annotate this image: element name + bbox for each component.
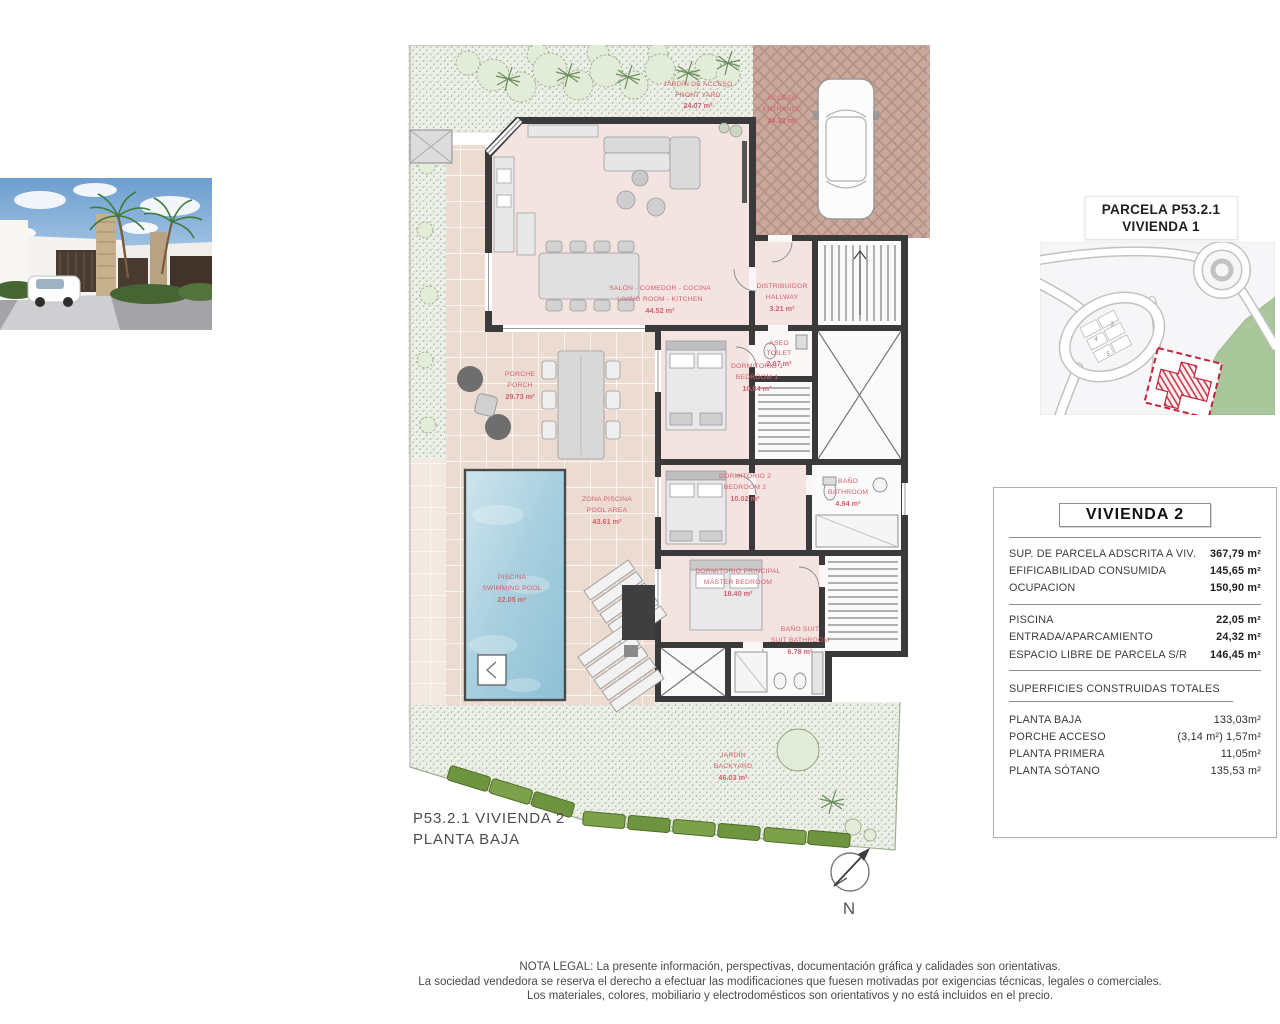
svg-text:BAÑO SUIT: BAÑO SUIT	[781, 624, 819, 633]
row-label: PORCHE ACCESO	[1009, 731, 1106, 743]
panel-row: PISCINA 22,05 m²	[1008, 612, 1262, 629]
bed-bedroom2	[666, 471, 726, 544]
caption-line1: P53.2.1 VIVIENDA 2	[413, 808, 565, 829]
svg-text:18.40 m²: 18.40 m²	[723, 589, 753, 598]
svg-text:3.21 m²: 3.21 m²	[769, 304, 795, 313]
legal-line1: NOTA LEGAL: La presente información, per…	[295, 960, 1280, 975]
row-label: SUP. DE PARCELA ADSCRITA A VIV.	[1009, 548, 1196, 560]
svg-text:DORMITORIO 2: DORMITORIO 2	[719, 473, 771, 480]
row-value: 11,05m²	[1221, 748, 1261, 760]
panel-row: EFIFICABILIDAD CONSUMIDA 145,65 m²	[1008, 562, 1262, 579]
panel-title: VIVIENDA 2	[1059, 503, 1211, 527]
svg-text:BACKYARD: BACKYARD	[714, 763, 753, 770]
svg-text:PORCH: PORCH	[507, 382, 533, 389]
row-label: ESPACIO LIBRE DE PARCELA S/R	[1009, 649, 1187, 661]
svg-text:29.73 m²: 29.73 m²	[505, 392, 535, 401]
caption-line2: PLANTA BAJA	[413, 829, 565, 850]
svg-text:44.52 m²: 44.52 m²	[645, 306, 675, 315]
svg-text:SALÓN - COMEDOR - COCINA: SALÓN - COMEDOR - COCINA	[609, 283, 711, 292]
svg-text:TOILET: TOILET	[767, 350, 792, 357]
utility-box	[410, 130, 452, 163]
divider	[1009, 537, 1261, 538]
plan-caption: P53.2.1 VIVIENDA 2 PLANTA BAJA	[413, 808, 565, 850]
map-title-line1: PARCELA P53.2.1	[1102, 201, 1221, 218]
svg-text:BATHROOM: BATHROOM	[828, 489, 869, 496]
svg-text:DISTRIBUIDOR: DISTRIBUIDOR	[756, 283, 807, 290]
svg-text:LIVING ROOM - KITCHEN: LIVING ROOM - KITCHEN	[617, 296, 702, 303]
row-label: PISCINA	[1009, 614, 1054, 626]
side-walkway	[408, 458, 446, 705]
svg-text:PORCHE: PORCHE	[505, 371, 536, 378]
svg-text:BEDROOM 1: BEDROOM 1	[736, 374, 779, 381]
svg-text:JARDÍN DE ACCESO: JARDÍN DE ACCESO	[663, 79, 732, 88]
svg-text:22.05 m²: 22.05 m²	[497, 595, 527, 604]
svg-text:6.78 m²: 6.78 m²	[787, 647, 813, 656]
panel-row: ENTRADA/APARCAMIENTO 24,32 m²	[1008, 629, 1262, 646]
row-value: 146,45 m²	[1210, 649, 1261, 661]
svg-text:ASEO: ASEO	[769, 340, 789, 347]
stairs-mid	[755, 382, 812, 459]
car	[28, 276, 80, 307]
svg-text:BEDROOM 2: BEDROOM 2	[724, 484, 767, 491]
car-icon	[813, 79, 879, 219]
svg-text:10.84 m²: 10.84 m²	[742, 384, 772, 393]
row-label: EFIFICABILIDAD CONSUMIDA	[1009, 565, 1166, 577]
svg-text:46.03 m²: 46.03 m²	[718, 773, 748, 782]
row-label: PLANTA BAJA	[1009, 714, 1082, 726]
access-hatch	[478, 655, 506, 685]
svg-text:PISCINA: PISCINA	[498, 574, 527, 581]
row-value: 135,53 m²	[1211, 765, 1261, 777]
svg-text:24.32 m²: 24.32 m²	[767, 116, 797, 125]
section-title: SUPERFICIES CONSTRUIDAS TOTALES	[1009, 683, 1233, 702]
row-label: PLANTA PRIMERA	[1009, 748, 1105, 760]
svg-text:JARDÍN: JARDÍN	[720, 750, 746, 759]
map-title: PARCELA P53.2.1 VIVIENDA 1	[1085, 196, 1238, 240]
row-value: 150,90 m²	[1210, 582, 1261, 594]
row-label: OCUPACION	[1009, 582, 1075, 594]
svg-text:DORMITORIO 1: DORMITORIO 1	[731, 363, 783, 370]
brochure-page: JARDÍN DE ACCESO FRONT YARD 24.07 m² ACC…	[0, 0, 1280, 1024]
row-label: ENTRADA/APARCAMIENTO	[1009, 631, 1153, 643]
site-map: 3 4 5	[1040, 242, 1275, 415]
row-value: 22,05 m²	[1216, 614, 1261, 626]
panel-row: OCUPACION 150,90 m²	[1008, 579, 1262, 596]
panel-row: SUP. DE PARCELA ADSCRITA A VIV. 367,79 m…	[1008, 545, 1262, 562]
row-value: 367,79 m²	[1210, 548, 1261, 560]
outdoor-cabinet	[622, 585, 655, 640]
row-value: 133,03m²	[1214, 714, 1261, 726]
row-value: 24,32 m²	[1216, 631, 1261, 643]
panel-row: PLANTA PRIMERA 11,05m²	[1008, 746, 1262, 763]
legal-line3: Los materiales, colores, mobiliario y el…	[295, 989, 1280, 1004]
panel-row: ESPACIO LIBRE DE PARCELA S/R 146,45 m²	[1008, 646, 1262, 663]
row-label: PLANTA SÓTANO	[1009, 765, 1100, 777]
svg-text:ACCESO: ACCESO	[767, 95, 797, 102]
svg-text:MÁSTER BEDROOM: MÁSTER BEDROOM	[704, 577, 772, 586]
summary-panel: VIVIENDA 2 SUP. DE PARCELA ADSCRITA A VI…	[993, 487, 1277, 838]
row-value: (3,14 m²) 1,57m²	[1177, 731, 1261, 743]
svg-text:43.61 m²: 43.61 m²	[592, 517, 622, 526]
svg-text:24.07 m²: 24.07 m²	[683, 101, 713, 110]
panel-row: PLANTA BAJA 133,03m²	[1008, 711, 1262, 728]
legal-line2: La sociedad vendedora se reserva el dere…	[295, 975, 1280, 990]
north-compass-icon: N	[816, 842, 886, 927]
svg-text:10.02 m²: 10.02 m²	[730, 494, 760, 503]
bed-bedroom1	[666, 341, 726, 430]
svg-text:HALLWAY: HALLWAY	[766, 294, 799, 301]
legal-note: NOTA LEGAL: La presente información, per…	[295, 960, 1280, 1004]
divider	[1009, 670, 1261, 671]
svg-text:SUIT BATHROOM: SUIT BATHROOM	[771, 637, 830, 644]
panel-row: PLANTA SÓTANO 135,53 m²	[1008, 763, 1262, 780]
svg-text:ZONA PISCINA: ZONA PISCINA	[582, 496, 632, 503]
row-value: 145,65 m²	[1210, 565, 1261, 577]
north-label: N	[843, 899, 855, 918]
svg-text:ENTRANCE: ENTRANCE	[763, 106, 802, 113]
divider	[1009, 604, 1261, 605]
svg-text:FRONT YARD: FRONT YARD	[675, 92, 720, 99]
svg-text:BAÑO: BAÑO	[838, 476, 858, 485]
floor-plan: JARDÍN DE ACCESO FRONT YARD 24.07 m² ACC…	[408, 45, 933, 875]
svg-text:SWIMMING POOL: SWIMMING POOL	[482, 585, 542, 592]
svg-text:DORMITORIO PRINCIPAL: DORMITORIO PRINCIPAL	[695, 568, 780, 575]
svg-text:POOL AREA: POOL AREA	[587, 507, 628, 514]
map-title-line2: VIVIENDA 1	[1102, 218, 1221, 235]
villa-render-photo	[0, 178, 212, 330]
panel-row: PORCHE ACCESO (3,14 m²) 1,57m²	[1008, 728, 1262, 745]
svg-text:4.94 m²: 4.94 m²	[835, 499, 861, 508]
